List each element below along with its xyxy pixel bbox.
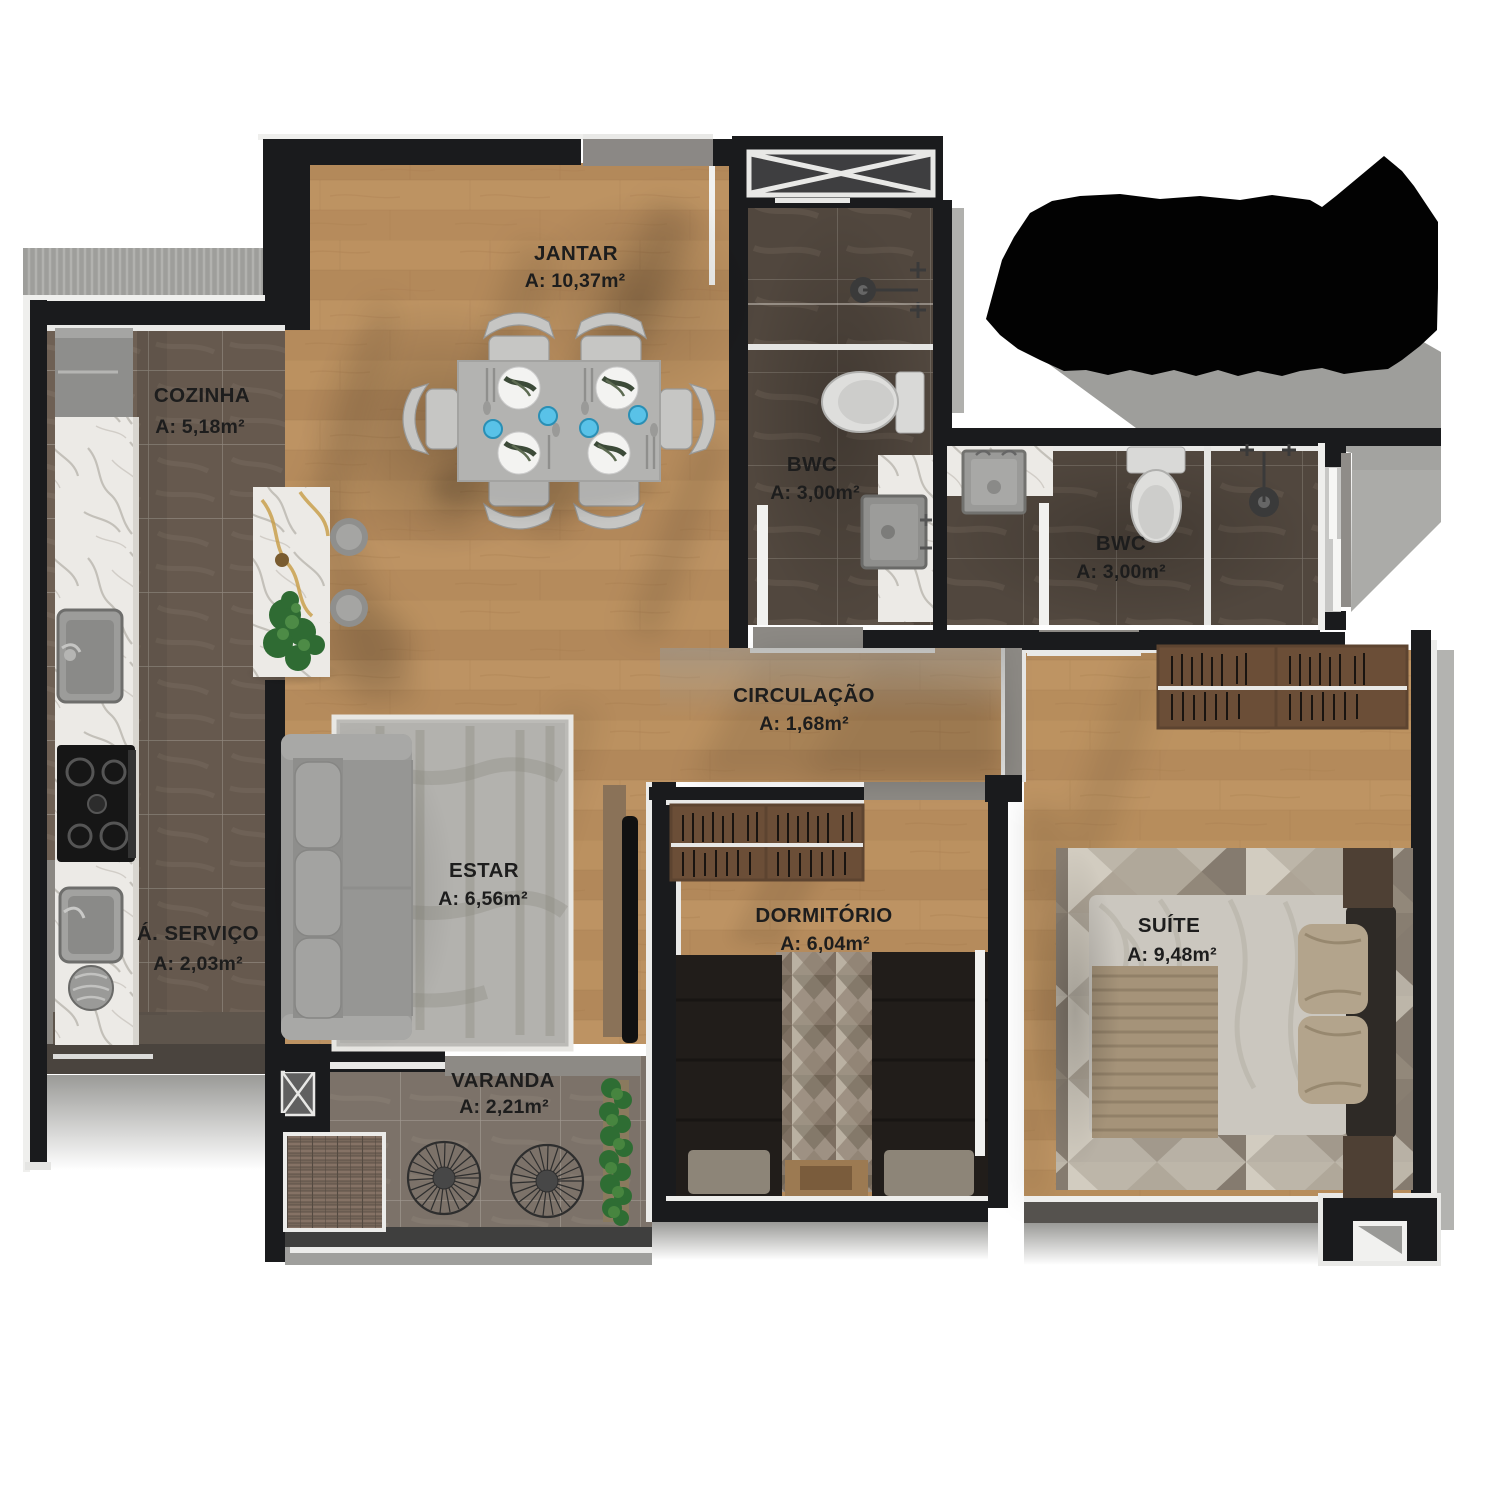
svg-text:A: 9,48m²: A: 9,48m² <box>1127 944 1217 966</box>
svg-text:Á. SERVIÇO: Á. SERVIÇO <box>137 922 259 945</box>
svg-text:CIRCULAÇÃO: CIRCULAÇÃO <box>733 684 875 707</box>
svg-text:BWC: BWC <box>1096 532 1146 555</box>
svg-text:A: 2,03m²: A: 2,03m² <box>153 953 243 975</box>
svg-text:A: 1,68m²: A: 1,68m² <box>759 713 849 735</box>
svg-text:A: 3,00m²: A: 3,00m² <box>1076 561 1166 583</box>
svg-text:ESTAR: ESTAR <box>449 859 519 882</box>
svg-text:COZINHA: COZINHA <box>154 384 250 407</box>
svg-text:SUÍTE: SUÍTE <box>1138 914 1200 937</box>
svg-text:A: 3,00m²: A: 3,00m² <box>770 482 860 504</box>
svg-text:A: 10,37m²: A: 10,37m² <box>525 270 626 292</box>
svg-text:DORMITÓRIO: DORMITÓRIO <box>755 903 892 927</box>
svg-text:VARANDA: VARANDA <box>451 1069 555 1092</box>
svg-text:A: 6,04m²: A: 6,04m² <box>780 933 870 955</box>
svg-text:A: 2,21m²: A: 2,21m² <box>459 1096 549 1118</box>
svg-text:BWC: BWC <box>787 453 837 476</box>
svg-text:JANTAR: JANTAR <box>534 242 618 265</box>
svg-text:A: 5,18m²: A: 5,18m² <box>155 416 245 438</box>
svg-text:A: 6,56m²: A: 6,56m² <box>438 888 528 910</box>
